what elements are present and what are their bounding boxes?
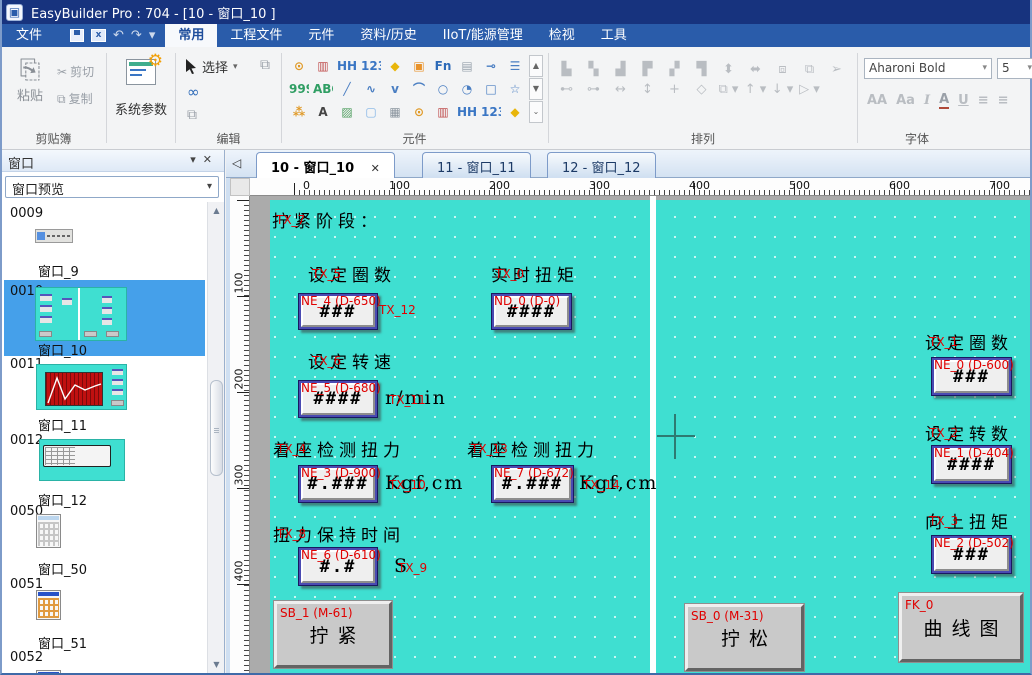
toggle-switch-icon[interactable]: ▣ xyxy=(408,55,430,76)
group-edit: 选择 ▾ ⧉ ∞ ⧉ 编辑 xyxy=(177,47,280,149)
distribute-v-icon[interactable]: ⊶ xyxy=(580,81,607,101)
multi-duplicate-icon[interactable]: ⧉ xyxy=(187,107,197,123)
fit-height-icon[interactable]: ⬍ xyxy=(715,61,742,81)
object-tag: NE_4 (D-650) xyxy=(301,294,381,308)
object-tag: NE_7 (D-672) xyxy=(494,466,574,480)
object-tag: TX_9 xyxy=(398,561,427,575)
components-scroll: ▲ ▼ ⌄ xyxy=(529,55,543,123)
components-scroll-down-icon[interactable]: ▼ xyxy=(529,78,543,100)
align-right-icon[interactable]: ▟ xyxy=(607,61,634,81)
tab-scroll-left-icon[interactable]: ◁ xyxy=(232,156,241,170)
font-size-caret-icon: ▾ xyxy=(1027,59,1032,78)
rect-icon[interactable]: □ xyxy=(480,78,502,99)
set-bit2-icon[interactable]: HH xyxy=(456,101,478,122)
same-height-icon[interactable]: ↕ xyxy=(634,81,661,101)
word-lamp-icon[interactable]: ▥ xyxy=(312,55,334,76)
picture-icon[interactable]: ▨ xyxy=(336,101,358,122)
pin-icon[interactable]: ➢ xyxy=(823,61,850,81)
group-system: ⚙ 系统参数 xyxy=(108,47,174,149)
window-item-0011[interactable]: 0011 窗口_11 xyxy=(2,357,207,433)
numeric-input-ne1[interactable]: ####NE_1 (D-404) xyxy=(931,445,1012,484)
object-tag: TX_13 xyxy=(471,442,508,456)
group-label-edit: 编辑 xyxy=(177,130,280,147)
send-back-icon[interactable]: ▷ ▾ xyxy=(796,81,823,101)
undo-icon[interactable]: ↶ xyxy=(113,28,124,43)
shape-icon[interactable]: ◇ xyxy=(688,81,715,101)
object-tag: ND_0 (D-0) xyxy=(494,294,560,308)
function-key-icon[interactable]: ◆ xyxy=(384,55,406,76)
menu-file[interactable]: 文件 xyxy=(2,24,56,47)
object-tag: TX_12 xyxy=(379,303,416,317)
numeric-input-ne6[interactable]: #.#NE_6 (D-610) xyxy=(298,547,378,586)
horizontal-ruler: 0 100 200 300 400 500 600 700 xyxy=(250,178,1030,196)
star-icon[interactable]: ☆ xyxy=(504,78,526,99)
multi-state-icon[interactable]: ▤ xyxy=(456,55,478,76)
object-tag: NE_6 (D-610) xyxy=(301,548,381,562)
window-item-0012[interactable]: 0012 窗口_12 xyxy=(2,433,207,507)
window-thumbnail xyxy=(35,229,73,243)
table-icon[interactable]: ▦ xyxy=(384,101,406,122)
set-word2-icon[interactable]: 123 xyxy=(480,101,502,122)
window-thumbnail xyxy=(36,364,127,410)
group-clipboard: ⎘ 粘贴 ✂剪切 ⧉复制 剪贴簿 xyxy=(2,47,105,149)
pie-icon[interactable]: ◔ xyxy=(456,78,478,99)
doc-tab-window10[interactable]: 10 - 窗口_10 ✕ xyxy=(256,152,395,178)
quick-access-more-icon[interactable]: ▾ xyxy=(149,28,156,43)
canvas-text[interactable]: 着座检测扭力TX_4 xyxy=(273,436,405,461)
copy-button[interactable]: ⧉复制 xyxy=(57,90,93,107)
tab-tool[interactable]: 工具 xyxy=(588,24,640,47)
gear-icon: ⚙ xyxy=(148,51,163,71)
distribute-h-icon[interactable]: ⊷ xyxy=(553,81,580,101)
tab-data-history[interactable]: 资料/历史 xyxy=(347,24,429,47)
window-item-0009[interactable]: 0009 窗口_9 xyxy=(2,206,207,278)
object-tag: TX_1 xyxy=(929,335,958,349)
design-canvas[interactable]: 拧紧阶段：TX_7 设定圈数TX_5 实时扭矩TX_0 设定转速TX_6 r/m… xyxy=(250,196,1030,673)
ruler-corner xyxy=(230,178,250,196)
font-color-icon[interactable]: A xyxy=(939,93,949,109)
arc-icon[interactable]: ⌒ xyxy=(408,78,430,99)
object-tag: TX_8 xyxy=(277,527,306,541)
bit-lamp2-icon[interactable]: ⊙ xyxy=(408,101,430,122)
set-bit-button-tighten[interactable]: SB_1 (M-61)拧紧 xyxy=(274,601,392,668)
group-icon[interactable]: ⧈ xyxy=(769,61,796,81)
window-edge-divider xyxy=(650,196,656,673)
fn-key-icon[interactable]: Fn xyxy=(432,55,454,76)
object-tag: NE_3 (D-900) xyxy=(301,466,381,480)
cut-icon: ✂ xyxy=(57,65,67,79)
text-icon[interactable]: A xyxy=(312,101,334,122)
doc-tab-window12[interactable]: 12 - 窗口_12 xyxy=(547,152,656,178)
object-tag: TX_5 xyxy=(312,267,341,281)
object-tag: NE_5 (D-680) xyxy=(301,381,381,395)
canvas-text[interactable]: 向上扭矩TX_3 xyxy=(925,508,1013,533)
canvas-text[interactable]: 设定圈数TX_5 xyxy=(308,261,396,286)
easybuilder-window: ▣ EasyBuilder Pro : 704 - [10 - 窗口_10 ] … xyxy=(0,0,1032,675)
group-label-font: 字体 xyxy=(859,130,975,147)
scroll-up-icon[interactable]: ▲ xyxy=(209,203,224,218)
paste-button[interactable]: ⎘ 粘贴 xyxy=(4,55,56,104)
object-tag: TX_11 xyxy=(389,393,426,407)
group-arrange: ▙▚▟▛▞▜⬍⬌⧈⧉➢⊷⊶↔↕+◇⧉ ▾↑ ▾↓ ▾▷ ▾ 排列 xyxy=(550,47,856,149)
save-icon[interactable] xyxy=(70,29,84,42)
object-tag: TX_10 xyxy=(389,478,426,492)
object-tag: TX_3 xyxy=(929,514,958,528)
tab-project[interactable]: 工程文件 xyxy=(217,24,295,47)
word-lamp2-icon[interactable]: ▥ xyxy=(432,101,454,122)
window-item-0010[interactable]: 0010 窗口_10 xyxy=(2,284,207,356)
numeric-display-nd0[interactable]: ####ND_0 (D-0) xyxy=(491,293,572,330)
object-tag: TX_14 xyxy=(583,478,620,492)
function-key2-icon[interactable]: ◆ xyxy=(504,101,526,122)
fit-width-icon[interactable]: ⬌ xyxy=(742,61,769,81)
canvas-text[interactable]: 设定圈数TX_1 xyxy=(925,329,1013,354)
group-label-components: 元件 xyxy=(283,130,546,147)
numeric-input-ne5[interactable]: ####NE_5 (D-680) xyxy=(298,380,378,418)
option-list-icon[interactable]: ☰ xyxy=(504,55,526,76)
system-params-icon: ⚙ xyxy=(126,59,156,85)
canvas-text[interactable]: 着座检测扭力TX_13 xyxy=(467,436,599,461)
group-label-arrange: 排列 xyxy=(550,130,856,147)
object-tag: NE_2 (D-502) xyxy=(934,536,1014,550)
align-bottom-icon[interactable]: ▜ xyxy=(688,61,715,81)
title-bar: ▣ EasyBuilder Pro : 704 - [10 - 窗口_10 ] xyxy=(2,0,1030,24)
move-down-icon[interactable]: ↓ ▾ xyxy=(769,81,796,101)
canvas-text[interactable]: Kgf,cmTX_10 xyxy=(385,472,464,494)
line-icon[interactable]: ╱ xyxy=(336,78,358,99)
numeric-input-ne3[interactable]: #.###NE_3 (D-900) xyxy=(298,465,378,503)
paste-icon: ⎘ xyxy=(4,55,56,85)
window-thumbnail xyxy=(36,514,61,548)
window-thumbnail xyxy=(35,287,127,341)
polyline-icon[interactable]: ⅴ xyxy=(384,78,406,99)
bit-lamp-icon[interactable]: ⊙ xyxy=(288,55,310,76)
font-shrink-icon[interactable]: Aa xyxy=(896,93,915,109)
select-button[interactable]: 选择 ▾ xyxy=(185,57,238,76)
frame-icon[interactable]: ▢ xyxy=(360,101,382,122)
window-copy-icon[interactable]: ⧉ xyxy=(260,57,270,73)
ascii-abc-icon[interactable]: ABC xyxy=(312,78,334,99)
object-tag: TX_6 xyxy=(312,354,341,368)
menu-bar: 文件 x ↶ ↷ ▾ 常用 工程文件 元件 资料/历史 IIoT/能源管理 检视… xyxy=(2,24,1030,47)
window-tree-panel: 窗口 ▾✕ 窗口预览 ▾ 0009 窗口_9 0010 xyxy=(2,150,225,673)
window-thumbnail xyxy=(36,670,61,673)
underline-icon[interactable]: U xyxy=(958,93,969,109)
select-caret-icon: ▾ xyxy=(233,62,238,72)
cursor-arrow-icon xyxy=(185,59,197,74)
tab-iiot-energy[interactable]: IIoT/能源管理 xyxy=(430,24,536,47)
canvas-text[interactable]: 设定转速TX_6 xyxy=(308,348,396,373)
font-enlarge-icon[interactable]: AA xyxy=(867,93,887,109)
copy-icon: ⧉ xyxy=(57,92,66,106)
components-more-icon[interactable]: ⌄ xyxy=(529,101,543,123)
ungroup-icon[interactable]: ⧉ xyxy=(796,61,823,81)
object-tag: TX_2 xyxy=(929,426,958,440)
workspace: ◁ 10 - 窗口_10 ✕ 11 - 窗口_11 12 - 窗口_12 0 1… xyxy=(226,150,1030,673)
scroll-down-icon[interactable]: ▼ xyxy=(209,657,224,672)
object-tag: TX_4 xyxy=(277,442,306,456)
align-left-icon[interactable]: ≡ xyxy=(978,93,989,109)
numeric-input-ne2[interactable]: ###NE_2 (D-502) xyxy=(931,535,1012,574)
align-center-icon[interactable]: ≡ xyxy=(998,93,1009,109)
canvas-text[interactable]: 设定转数TX_2 xyxy=(925,420,1013,445)
font-family-caret-icon: ▾ xyxy=(982,59,987,78)
font-size-select[interactable]: 5 ▾ xyxy=(997,58,1032,79)
object-tag: NE_1 (D-404) xyxy=(934,446,1014,460)
redo-icon[interactable]: ↷ xyxy=(131,28,142,43)
panel-title: 窗口 xyxy=(8,157,34,172)
canvas-text[interactable]: Kgf,cmTX_14 xyxy=(579,472,658,494)
doc-tab-window11[interactable]: 11 - 窗口_11 xyxy=(422,152,531,178)
align-center-h-icon[interactable]: ▚ xyxy=(580,61,607,81)
font-buttons: AA Aa I A U ≡ ≡ xyxy=(867,93,1009,109)
tab-object[interactable]: 元件 xyxy=(295,24,347,47)
italic-icon[interactable]: I xyxy=(924,93,930,109)
arrange-icon-grid: ▙▚▟▛▞▜⬍⬌⧈⧉➢⊷⊶↔↕+◇⧉ ▾↑ ▾↓ ▾▷ ▾ xyxy=(553,61,850,101)
circle-icon[interactable]: ○ xyxy=(432,78,454,99)
panel-close-icon[interactable]: ✕ xyxy=(203,153,219,166)
set-bit-icon[interactable]: HH xyxy=(336,55,358,76)
vertical-ruler: 100 200 300 400 xyxy=(230,196,250,673)
combo-caret-icon: ▾ xyxy=(207,181,212,192)
group-font: Aharoni Bold ▾ 5 ▾ AA Aa I A U ≡ ≡ 字体 xyxy=(859,47,1030,149)
align-left-icon[interactable]: ▙ xyxy=(553,61,580,81)
components-icon-grid: ⊙▥HH123◆▣Fn▤⊸☰999ABC╱∿ⅴ⌒○◔□☆⁂A▨▢▦⊙▥HH123… xyxy=(288,55,528,124)
tab-home[interactable]: 常用 xyxy=(165,24,217,47)
canvas-text[interactable]: 拧紧阶段：TX_7 xyxy=(272,207,382,232)
numeric-input-ne0[interactable]: ###NE_0 (D-600) xyxy=(931,357,1012,396)
crosshair-cursor xyxy=(674,414,676,459)
object-tag: TX_0 xyxy=(495,267,524,281)
spark-icon[interactable]: ⁂ xyxy=(288,101,310,122)
quick-access-toolbar: x ↶ ↷ ▾ xyxy=(56,24,165,47)
panel-header: 窗口 ▾✕ xyxy=(2,150,224,172)
move-up-icon[interactable]: ↑ ▾ xyxy=(742,81,769,101)
tab-view[interactable]: 检视 xyxy=(536,24,588,47)
window-thumbnail xyxy=(36,590,61,620)
cut-button[interactable]: ✂剪切 xyxy=(57,63,94,80)
numeric-999-icon[interactable]: 999 xyxy=(288,78,310,99)
set-bit-button-loosen[interactable]: SB_0 (M-31)拧松 xyxy=(685,604,804,671)
set-word-icon[interactable]: 123 xyxy=(360,55,382,76)
wave-icon[interactable]: ∿ xyxy=(360,78,382,99)
crosshair-cursor xyxy=(657,435,695,437)
components-scroll-up-icon[interactable]: ▲ xyxy=(529,55,543,77)
canvas-text[interactable]: 扭力保持时间TX_8 xyxy=(273,521,405,546)
system-params-button[interactable]: ⚙ 系统参数 xyxy=(108,59,174,118)
align-middle-icon[interactable]: ▞ xyxy=(661,61,688,81)
close-tab-icon[interactable]: ✕ xyxy=(371,162,380,175)
canvas-text[interactable]: STX_9 xyxy=(394,555,409,577)
app-logo-icon: ▣ xyxy=(6,4,23,21)
same-size-icon[interactable]: + xyxy=(661,81,688,101)
numeric-input-ne7[interactable]: #.###NE_7 (D-672) xyxy=(491,465,574,503)
canvas-text[interactable]: r/minTX_11 xyxy=(385,387,447,409)
trend-curve xyxy=(45,372,103,406)
window-item-0050[interactable]: 0050 窗口_50 xyxy=(2,504,207,576)
window-list: 0009 窗口_9 0010 窗口_10 0011 xyxy=(2,202,207,673)
function-key-button-curve[interactable]: FK_0曲线图 xyxy=(899,593,1023,662)
ribbon: ⎘ 粘贴 ✂剪切 ⧉复制 剪贴簿 ⚙ 系统参数 xyxy=(2,47,1030,150)
canvas-text[interactable]: 实时扭矩TX_0 xyxy=(491,261,579,286)
align-top-icon[interactable]: ▛ xyxy=(634,61,661,81)
export-image-icon[interactable]: x xyxy=(91,29,106,42)
document-tab-bar: ◁ 10 - 窗口_10 ✕ 11 - 窗口_11 12 - 窗口_12 xyxy=(226,150,1030,178)
group-components: ⊙▥HH123◆▣Fn▤⊸☰999ABC╱∿ⅴ⌒○◔□☆⁂A▨▢▦⊙▥HH123… xyxy=(283,47,546,149)
slider-icon[interactable]: ⊸ xyxy=(480,55,502,76)
window-item-0051[interactable]: 0051 窗口_51 xyxy=(2,577,207,649)
window-item-0052[interactable]: 0052 xyxy=(2,650,207,673)
same-width-icon[interactable]: ↔ xyxy=(607,81,634,101)
window-title: EasyBuilder Pro : 704 - [10 - 窗口_10 ] xyxy=(31,3,276,22)
redundancy-icon[interactable]: ∞ xyxy=(187,83,200,101)
numeric-input-ne4[interactable]: ###NE_4 (D-650) xyxy=(298,293,378,330)
window-preview-select[interactable]: 窗口预览 ▾ xyxy=(5,176,219,198)
panel-menu-caret-icon[interactable]: ▾ xyxy=(190,153,203,166)
font-family-select[interactable]: Aharoni Bold ▾ xyxy=(864,58,992,79)
object-tag: NE_0 (D-600) xyxy=(934,358,1014,372)
scrollbar-thumb[interactable] xyxy=(210,380,223,476)
group-label-clipboard: 剪贴簿 xyxy=(2,130,105,147)
window-thumbnail xyxy=(39,439,125,481)
object-tag: TX_7 xyxy=(276,213,305,227)
bring-front-icon[interactable]: ⧉ ▾ xyxy=(715,81,742,101)
window-list-scrollbar[interactable]: ▲ ▼ xyxy=(207,202,224,673)
